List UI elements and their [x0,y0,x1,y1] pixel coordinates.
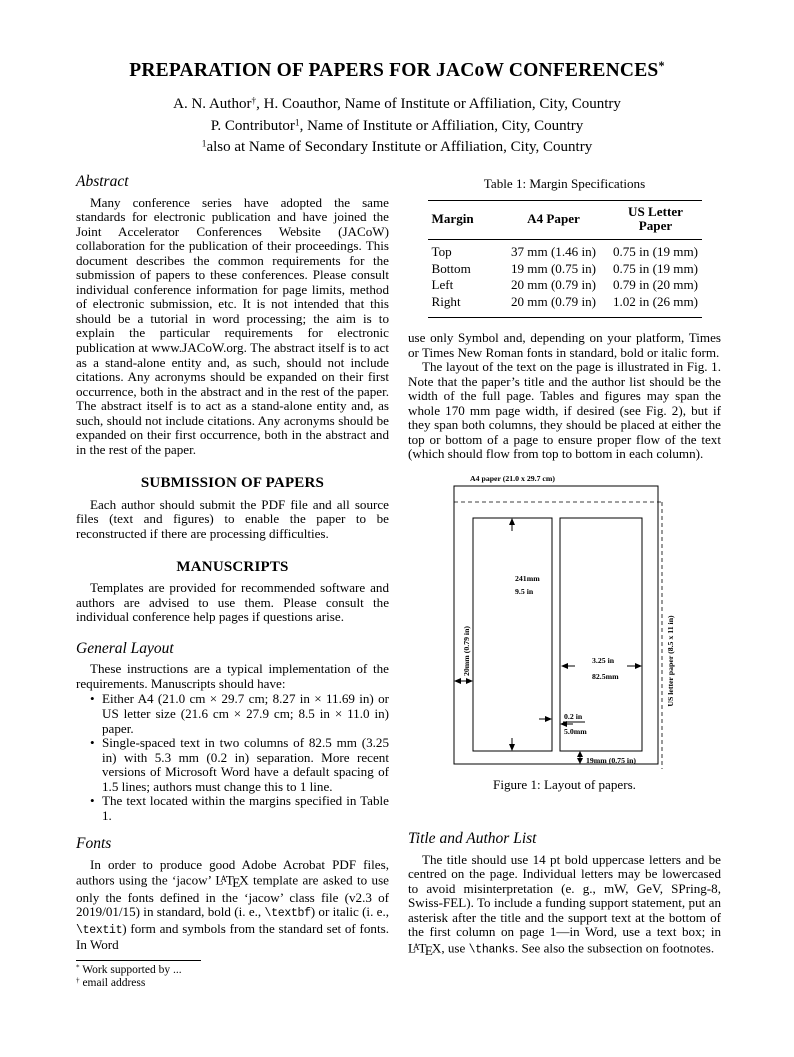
title-author-list-paragraph: The title should use 14 pt bold uppercas… [408,853,721,959]
submission-heading: SUBMISSION OF PAPERS [76,476,389,491]
abstract-heading: Abstract [76,175,389,190]
list-item: Either A4 (21.0 cm × 29.7 cm; 8.27 in × … [102,692,389,736]
title-block: PREPARATION OF PAPERS FOR JACoW CONFEREN… [0,60,794,159]
fonts-continuation-paragraph: use only Symbol and, depending on your p… [408,331,721,360]
figure-1: A4 paper (21.0 x 29.7 cm) US letter pape… [408,471,721,793]
author-line-1: A. N. Author†, H. Coauthor, Name of Inst… [0,94,794,116]
bottom-margin-label: 19mm (0.75 in) [586,756,636,765]
gutter-in-label: 0.2 in [564,712,583,721]
column-height-mm-label: 241mm [515,574,540,583]
table-row: Right 20 mm (0.79 in) 1.02 in (26 mm) [428,294,702,317]
table-row: Top 37 mm (1.46 in) 0.75 in (19 mm) [428,239,702,260]
footnote-email: † email address [76,977,389,991]
cell-margin: Right [428,294,498,317]
col-header-margin: Margin [428,200,498,239]
general-layout-heading: General Layout [76,642,389,657]
general-layout-intro: These instructions are a typical impleme… [76,662,389,691]
list-item: The text located within the margins spec… [102,794,389,823]
table-row: Bottom 19 mm (0.75 in) 0.75 in (19 mm) [428,260,702,277]
left-margin-arrows [454,678,473,684]
author-line-2: P. Contributor1, Name of Institute or Af… [0,116,794,138]
col-header-a4: A4 Paper [498,200,610,239]
column-height-in-label: 9.5 in [515,587,534,596]
right-column: Table 1: Margin Specifications Margin A4… [408,175,721,958]
manuscripts-heading: MANUSCRIPTS [76,560,389,575]
fonts-paragraph: In order to produce good Adobe Acrobat P… [76,858,389,953]
footnote-block: * Work supported by ... † email address [76,960,389,991]
author-line-3: 1also at Name of Secondary Institute or … [0,137,794,159]
cell-usletter: 0.75 in (19 mm) [610,260,702,277]
layout-diagram: A4 paper (21.0 x 29.7 cm) US letter pape… [408,471,721,774]
footnote-rule [76,960,201,961]
margin-specifications-table: Margin A4 Paper US Letter Paper Top 37 m… [428,200,702,318]
footnote-funding: * Work supported by ... [76,964,389,978]
column-width-in-label: 3.25 in [592,656,615,665]
general-layout-list: Either A4 (21.0 cm × 29.7 cm; 8.27 in × … [76,692,389,823]
us-letter-label: US letter paper (8.5 x 11 in) [666,615,675,707]
cell-a4: 37 mm (1.46 in) [498,239,610,260]
cell-a4: 20 mm (0.79 in) [498,277,610,294]
col-header-usletter: US Letter Paper [610,200,702,239]
cell-margin: Top [428,239,498,260]
submission-paragraph: Each author should submit the PDF file a… [76,498,389,542]
paper-page: PREPARATION OF PAPERS FOR JACoW CONFEREN… [0,0,794,1057]
abstract-paragraph: Many conference series have adopted the … [76,196,389,458]
table-caption: Table 1: Margin Specifications [408,177,721,192]
bottom-margin-arrows [577,751,583,764]
cell-margin: Left [428,277,498,294]
paper-title: PREPARATION OF PAPERS FOR JACoW CONFEREN… [0,60,794,82]
cell-usletter: 0.75 in (19 mm) [610,239,702,260]
column-width-mm-label: 82.5mm [592,672,619,681]
column-height-arrows [509,518,515,751]
cell-a4: 20 mm (0.79 in) [498,294,610,317]
a4-paper-label: A4 paper (21.0 x 29.7 cm) [470,474,555,483]
table-row: Left 20 mm (0.79 in) 0.79 in (20 mm) [428,277,702,294]
table-header-row: Margin A4 Paper US Letter Paper [428,200,702,239]
cell-margin: Bottom [428,260,498,277]
gutter-mm-label: 5.0mm [564,727,587,736]
list-item: Single-spaced text in two columns of 82.… [102,736,389,794]
a4-paper-outline [454,486,658,764]
fonts-heading: Fonts [76,837,389,852]
left-column-box [473,518,552,751]
cell-a4: 19 mm (0.75 in) [498,260,610,277]
left-margin-label: 20mm (0.79 in) [462,625,471,675]
left-column: Abstract Many conference series have ado… [76,175,389,991]
manuscripts-paragraph: Templates are provided for recommended s… [76,581,389,625]
title-author-list-heading: Title and Author List [408,832,721,847]
layout-paragraph: The layout of the text on the page is il… [408,360,721,462]
cell-usletter: 1.02 in (26 mm) [610,294,702,317]
figure-caption: Figure 1: Layout of papers. [408,778,721,793]
cell-usletter: 0.79 in (20 mm) [610,277,702,294]
